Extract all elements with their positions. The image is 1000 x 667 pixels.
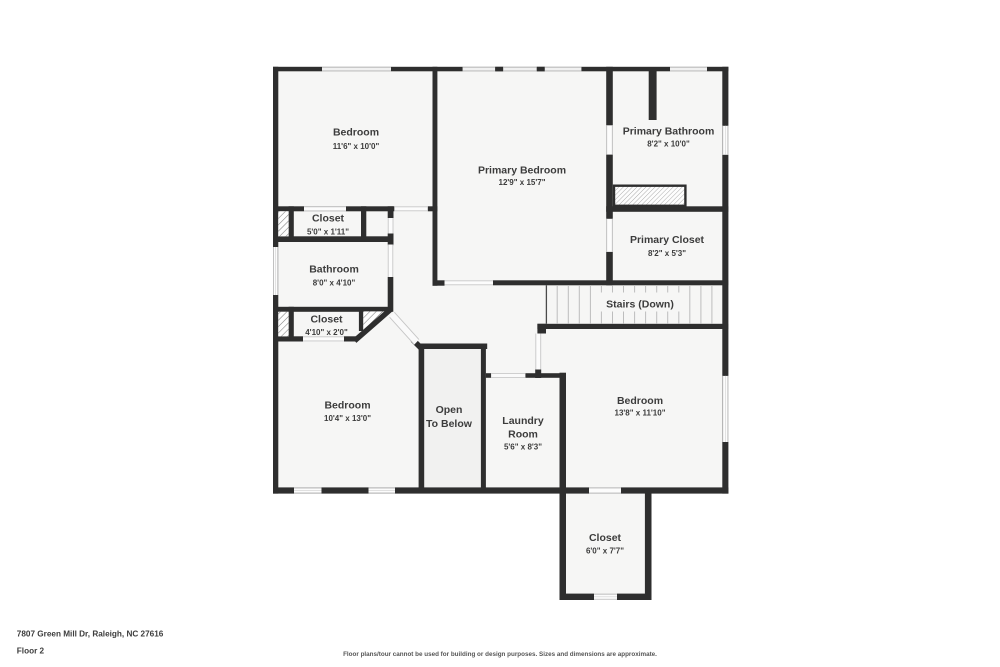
svg-text:10'4" x 13'0": 10'4" x 13'0" bbox=[324, 414, 371, 423]
svg-text:Bedroom: Bedroom bbox=[617, 395, 663, 407]
svg-text:8'2" x 10'0": 8'2" x 10'0" bbox=[647, 140, 690, 149]
svg-text:5'6" x 8'3": 5'6" x 8'3" bbox=[504, 443, 542, 452]
svg-text:Closet: Closet bbox=[589, 532, 622, 544]
svg-text:12'9" x 15'7": 12'9" x 15'7" bbox=[499, 178, 546, 187]
svg-text:6'0" x 7'7": 6'0" x 7'7" bbox=[586, 547, 624, 556]
svg-text:Floor 2: Floor 2 bbox=[17, 647, 45, 656]
svg-text:To Below: To Below bbox=[426, 418, 473, 430]
svg-text:Closet: Closet bbox=[310, 314, 343, 326]
svg-text:Stairs (Down): Stairs (Down) bbox=[606, 298, 674, 310]
svg-text:Closet: Closet bbox=[312, 213, 345, 225]
svg-text:Bedroom: Bedroom bbox=[333, 126, 379, 138]
svg-text:Room: Room bbox=[508, 429, 538, 441]
svg-text:Bedroom: Bedroom bbox=[324, 399, 370, 411]
svg-text:8'2" x 5'3": 8'2" x 5'3" bbox=[648, 249, 686, 258]
svg-text:Primary Bathroom: Primary Bathroom bbox=[623, 126, 715, 138]
svg-text:11'6" x 10'0": 11'6" x 10'0" bbox=[333, 142, 380, 151]
svg-text:Laundry: Laundry bbox=[502, 415, 544, 427]
svg-text:5'0" x 1'11": 5'0" x 1'11" bbox=[307, 228, 349, 237]
svg-text:7807 Green Mill Dr, Raleigh, N: 7807 Green Mill Dr, Raleigh, NC 27616 bbox=[17, 629, 164, 638]
svg-text:Primary Closet: Primary Closet bbox=[630, 234, 705, 246]
svg-text:8'0" x 4'10": 8'0" x 4'10" bbox=[313, 279, 356, 288]
svg-text:Floor plans/tour cannot be use: Floor plans/tour cannot be used for buil… bbox=[343, 651, 657, 658]
svg-text:Open: Open bbox=[436, 404, 463, 416]
svg-text:Primary Bedroom: Primary Bedroom bbox=[478, 164, 566, 176]
svg-text:13'8" x 11'10": 13'8" x 11'10" bbox=[615, 409, 666, 418]
svg-text:Bathroom: Bathroom bbox=[309, 263, 359, 275]
svg-text:4'10" x 2'0": 4'10" x 2'0" bbox=[305, 328, 348, 337]
